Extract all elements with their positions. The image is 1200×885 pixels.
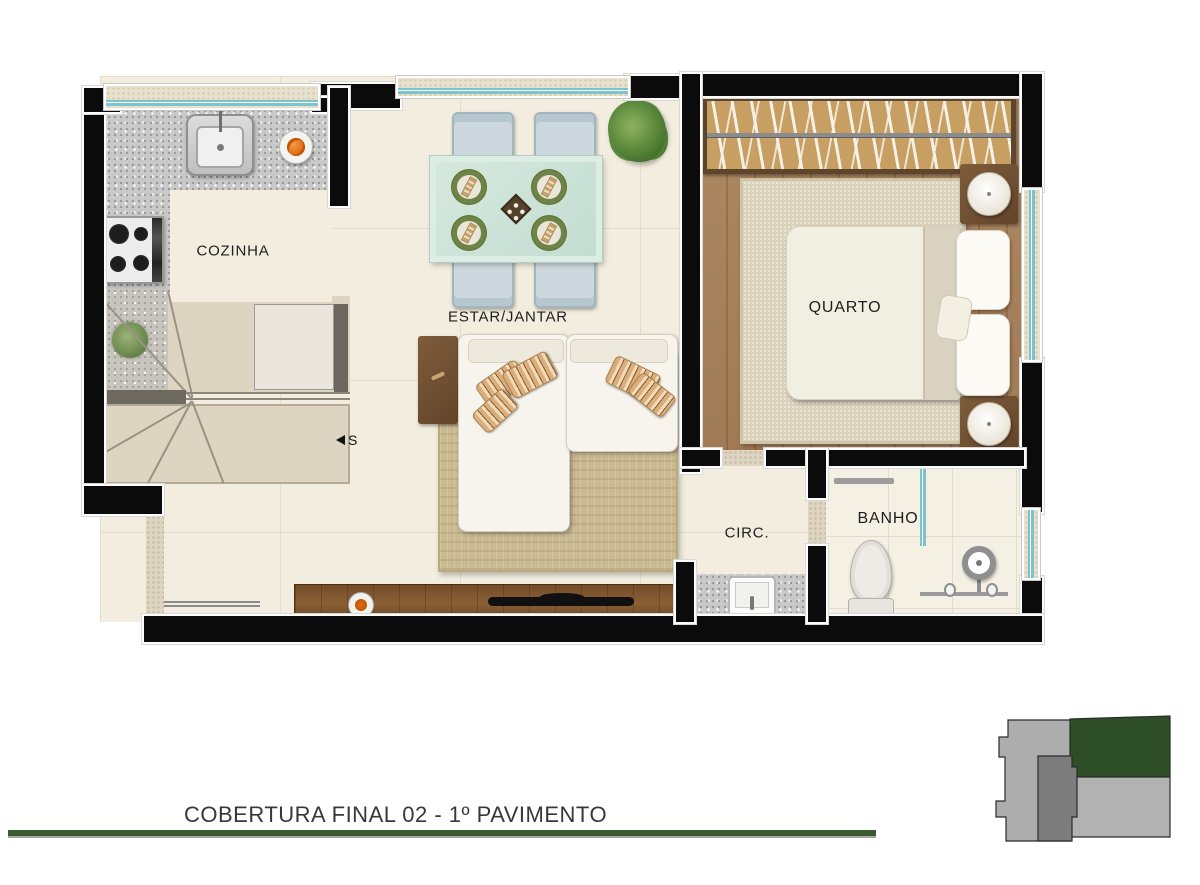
bedroom-window-glass [1029, 190, 1035, 360]
dining-chair [452, 254, 514, 308]
bathroom-window [1022, 508, 1040, 580]
wall-kitchen-divider [330, 88, 348, 206]
room-label-banho: BANHO [858, 510, 919, 528]
decor-plate-center [355, 599, 367, 611]
wall-left [84, 88, 104, 492]
kitchen-window-glass [106, 100, 318, 106]
decor-plate [348, 592, 374, 618]
shelf-lines [164, 601, 260, 607]
cooktop [102, 216, 164, 284]
bathroom-door-threshold [808, 496, 826, 548]
stairs-marker-label: S [348, 432, 357, 448]
shower-head-center [976, 560, 982, 566]
side-table-handle [431, 371, 445, 381]
kitchen-window [104, 84, 320, 110]
shower-head [962, 546, 996, 580]
stairs-overlay [254, 304, 334, 390]
side-table [418, 336, 458, 424]
fruit-bowl [279, 130, 313, 164]
toilet-tank [848, 598, 894, 618]
kitchen-sink [186, 114, 254, 176]
cooktop-controls [152, 218, 162, 282]
wall-left-jog [84, 486, 162, 514]
wall-circ-bath-upper [808, 450, 826, 498]
towel-hook [944, 583, 956, 597]
room-label-circ: CIRC. [725, 525, 770, 542]
nightstand-lamp [967, 402, 1011, 446]
wall-circ-bath-lower [808, 546, 826, 622]
sink-drain [217, 144, 224, 151]
stairs-arrow-icon [336, 435, 345, 445]
bedroom-window [1022, 188, 1042, 362]
dining-window-glass [398, 88, 628, 94]
wall-bedroom-top [694, 74, 1042, 96]
toilet [848, 540, 894, 620]
wardrobe-rod [707, 133, 1011, 137]
shower-glass [920, 466, 926, 546]
bathroom-window-glass [1028, 510, 1034, 578]
key-unit-right [1070, 777, 1170, 837]
wall-right-upper [1022, 74, 1042, 190]
dining-chair [534, 254, 596, 308]
nightstand-lamp [967, 172, 1011, 216]
wardrobe [702, 96, 1016, 174]
burner [133, 255, 149, 271]
room-label-cozinha: COZINHA [196, 243, 269, 260]
wall-living-circ [676, 562, 694, 622]
room-label-quarto: QUARTO [809, 299, 882, 317]
stairs-direction-marker: S [336, 432, 357, 448]
room-label-estar-jantar: ESTAR/JANTAR [448, 309, 568, 326]
towel-hook [986, 583, 998, 597]
place-setting [452, 170, 486, 204]
stairs-lower-flight [102, 404, 350, 484]
stair-divider [100, 390, 186, 404]
plant [608, 100, 666, 162]
burner [110, 256, 126, 272]
place-setting [532, 216, 566, 250]
place-setting [532, 170, 566, 204]
wall-bedroom-bottom-a [682, 450, 720, 466]
lower-ledge [146, 510, 164, 618]
caption-rule [8, 830, 876, 838]
key-unit-middle [1038, 756, 1077, 841]
burner [134, 227, 148, 241]
tv-base [540, 593, 584, 601]
wall-bedroom-bottom-b [766, 450, 1024, 466]
toilet-bowl [850, 540, 892, 602]
wall-right-middle [1022, 360, 1042, 512]
wall-bottom [144, 616, 1042, 642]
dining-window [396, 76, 630, 98]
stair-rail-line [186, 392, 350, 400]
stair-rail-bar [334, 304, 348, 392]
fruit-bowl-center [287, 138, 305, 156]
plan-caption: COBERTURA FINAL 02 - 1º PAVIMENTO [184, 802, 607, 828]
floorplan-page: S [0, 0, 1200, 885]
wall-dining-bedroom-divider [682, 74, 700, 472]
building-key-diagram [992, 706, 1182, 861]
burner [109, 224, 129, 244]
washbasin [728, 576, 776, 618]
bedroom-door-threshold [718, 450, 768, 466]
bed-accent-pillow [935, 294, 973, 342]
towel-rail [834, 478, 894, 484]
key-unit-highlight [1070, 716, 1170, 777]
washbasin-faucet-icon [750, 596, 754, 610]
place-setting [452, 216, 486, 250]
sink-faucet-icon [219, 110, 222, 132]
